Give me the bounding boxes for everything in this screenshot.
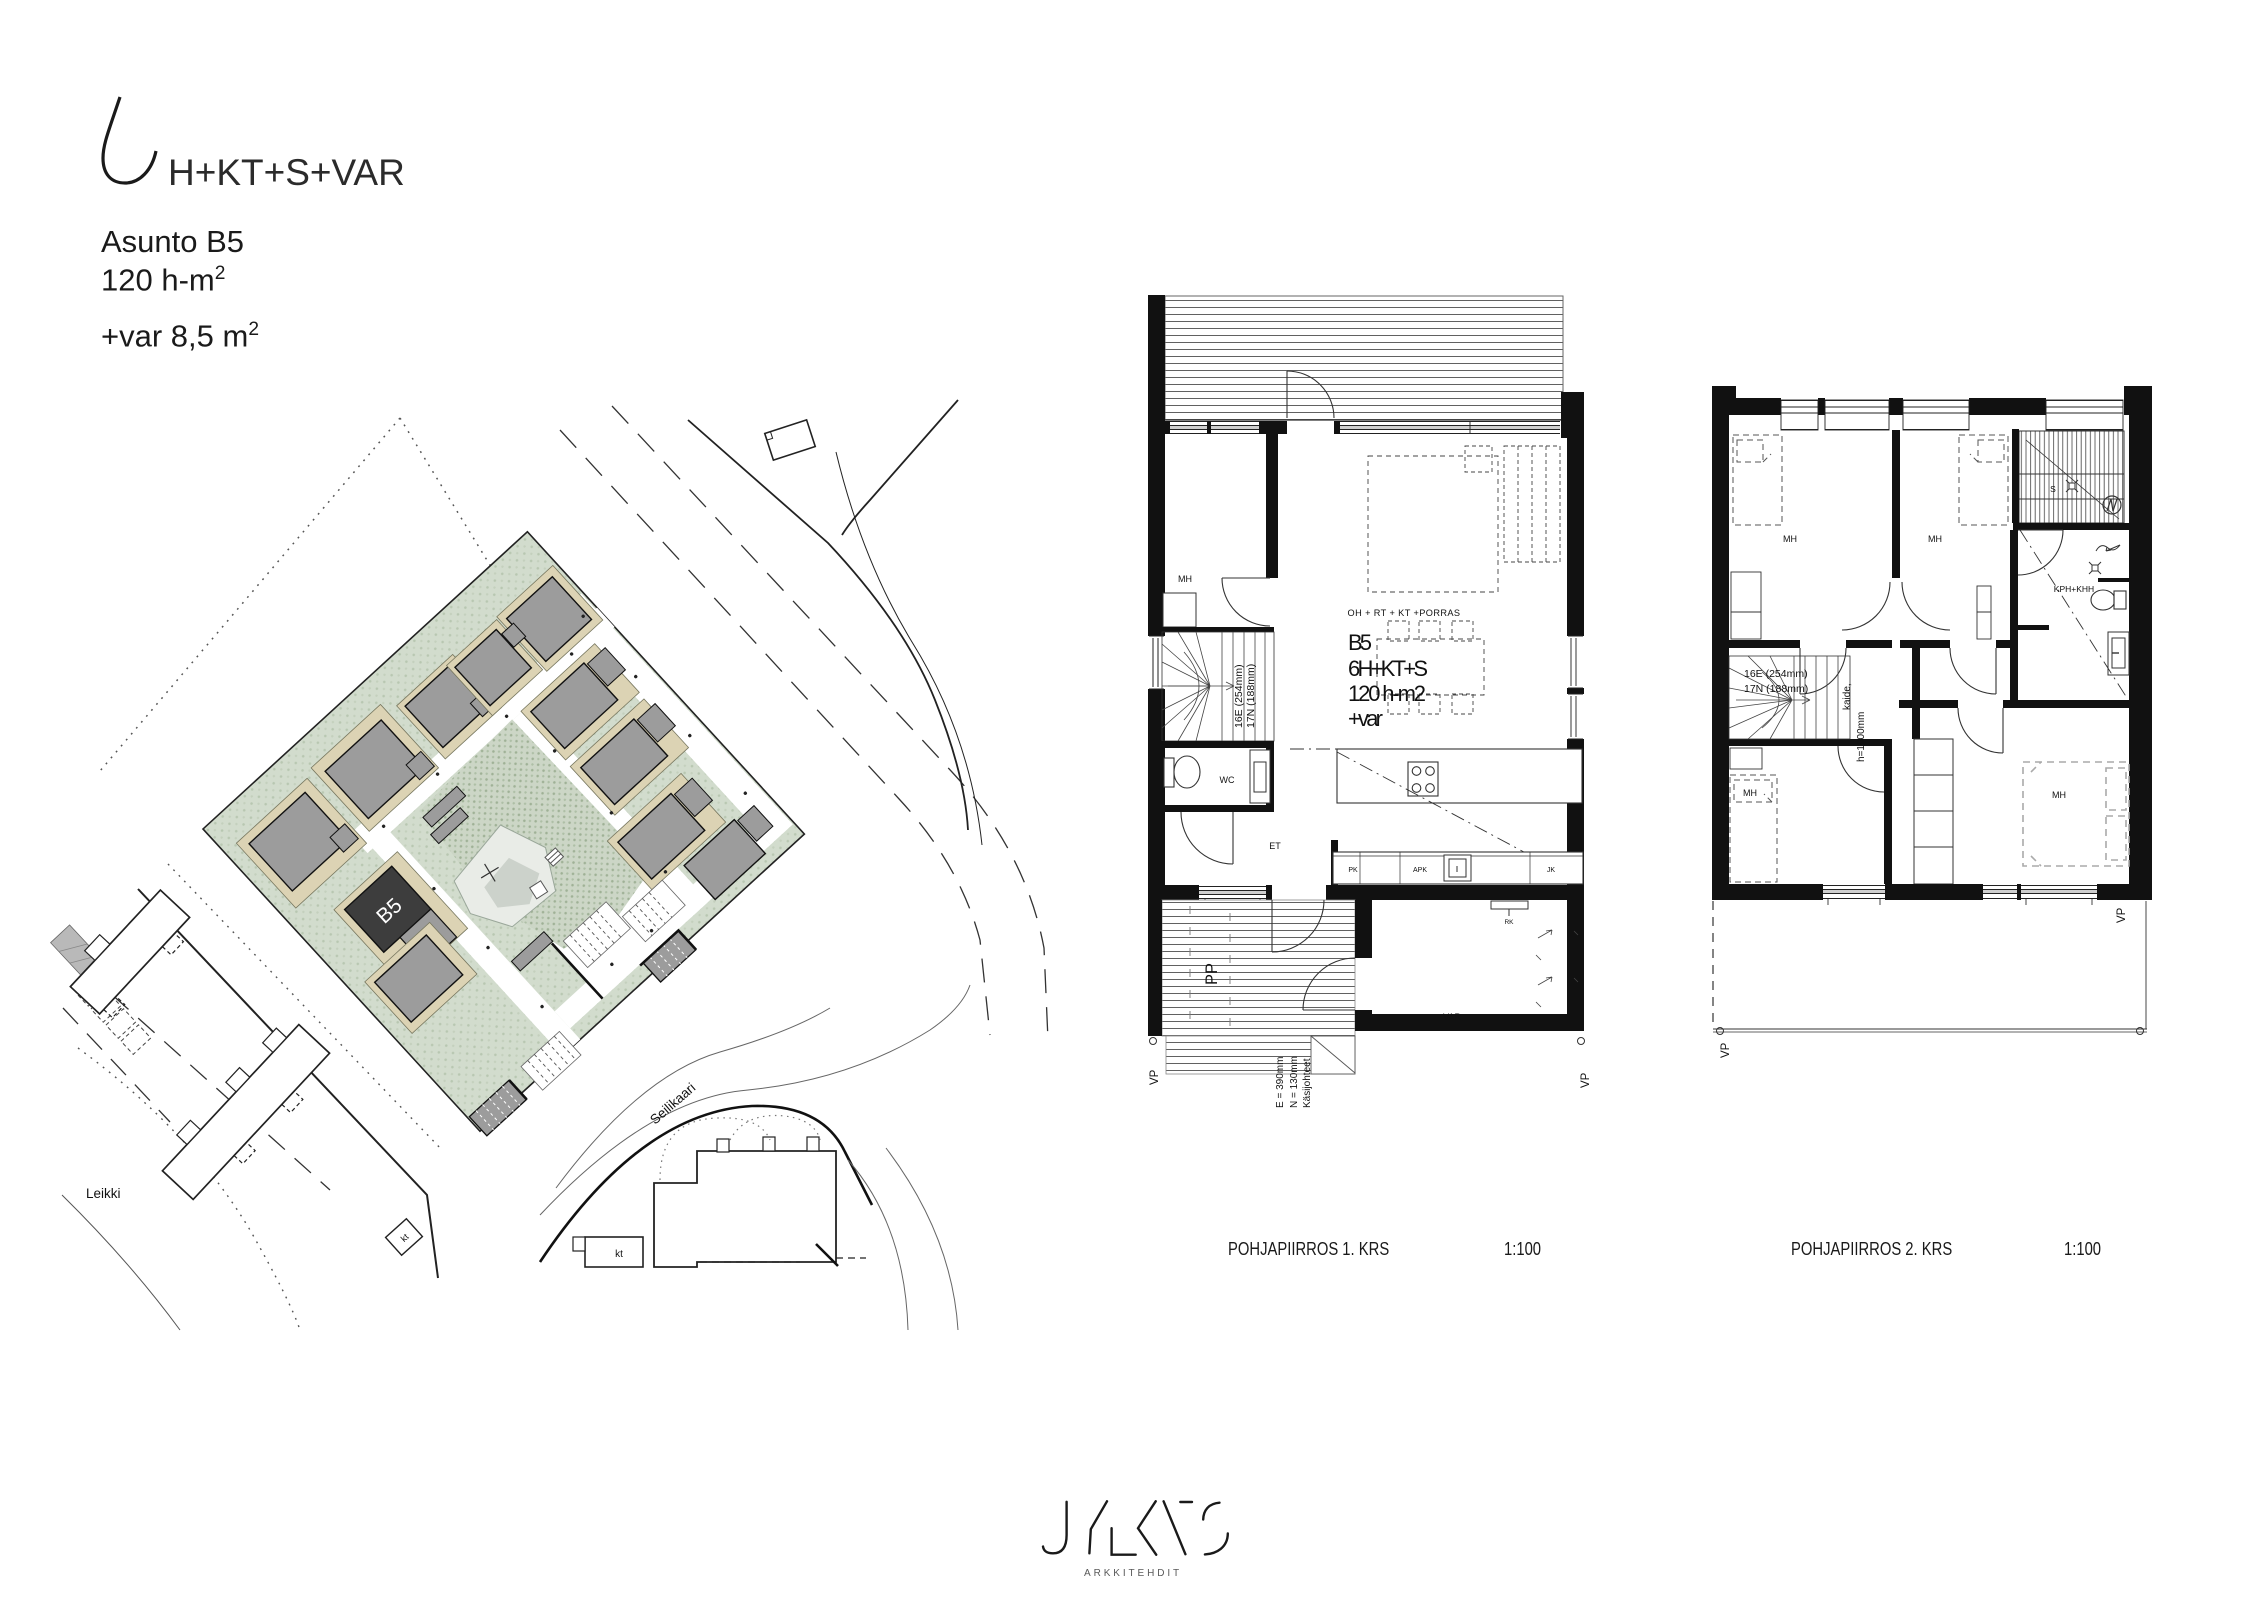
svg-text:VP: VP	[1720, 1042, 1732, 1058]
svg-text:MH: MH	[2052, 790, 2066, 800]
svg-text:kaide,: kaide,	[1842, 683, 1853, 710]
svg-text:JK: JK	[1547, 867, 1556, 874]
svg-text:MH: MH	[1178, 574, 1192, 584]
svg-text:N = 130mm: N = 130mm	[1289, 1056, 1300, 1108]
svg-text:+var: +var	[1348, 706, 1383, 731]
svg-text:MH: MH	[1743, 788, 1757, 798]
svg-text:VP: VP	[1580, 1072, 1592, 1088]
svg-text:17N (188mm): 17N (188mm)	[1245, 664, 1257, 728]
svg-text:VP: VP	[2116, 907, 2128, 923]
svg-text:PP: PP	[1203, 963, 1221, 985]
svg-text:ET: ET	[1269, 841, 1281, 851]
svg-text:RK: RK	[1504, 919, 1514, 926]
svg-text:PK: PK	[1348, 867, 1358, 874]
svg-text:KPH+KHH: KPH+KHH	[2054, 584, 2094, 594]
svg-text:B5: B5	[1348, 630, 1372, 655]
svg-text:WC: WC	[1220, 775, 1235, 785]
svg-text:kt: kt	[615, 1249, 623, 1260]
svg-text:Leikki: Leikki	[86, 1186, 121, 1201]
svg-text:120 h-m2: 120 h-m2	[1348, 681, 1426, 706]
svg-text:ARKKITEHDIT: ARKKITEHDIT	[1084, 1568, 1182, 1579]
svg-text:OH + RT + KT +PORRAS: OH + RT + KT +PORRAS	[1348, 608, 1461, 618]
svg-text:Käsijohteet: Käsijohteet	[1302, 1058, 1313, 1108]
svg-text:MH: MH	[1928, 534, 1942, 544]
svg-text:6H+KT+S: 6H+KT+S	[1348, 656, 1428, 681]
svg-text:VP: VP	[1149, 1069, 1161, 1085]
svg-text:S: S	[2050, 484, 2056, 494]
svg-text:16E (254mm): 16E (254mm)	[1233, 664, 1245, 728]
svg-text:APK: APK	[1413, 867, 1427, 874]
svg-text:16E (254mm): 16E (254mm)	[1744, 668, 1808, 680]
svg-text:17N (188mm): 17N (188mm)	[1744, 683, 1808, 695]
svg-text:h=1000mm: h=1000mm	[1856, 712, 1867, 762]
svg-text:VAR: VAR	[1443, 1012, 1461, 1022]
svg-text:MH: MH	[1783, 534, 1797, 544]
svg-text:E = 390mm: E = 390mm	[1275, 1057, 1286, 1108]
